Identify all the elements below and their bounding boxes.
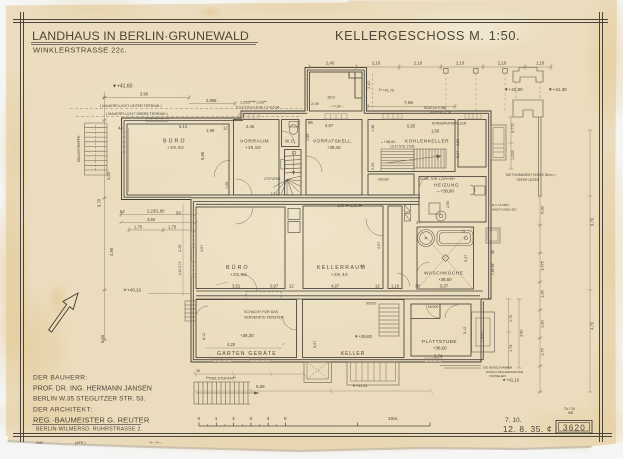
svg-text:KELLERTREPPE: KELLERTREPPE <box>77 135 81 162</box>
svg-text:1 9 13: 1 9 13 <box>271 192 280 196</box>
svg-text:2,10: 2,10 <box>456 61 465 66</box>
svg-text:▼+41,60: ▼+41,60 <box>504 87 523 92</box>
svg-text:⊢+41,70: ⊢+41,70 <box>379 89 394 93</box>
svg-text:+38,60: +38,60 <box>438 277 452 282</box>
svg-text:9,70: 9,70 <box>97 198 102 207</box>
svg-text:▼+41,44: ▼+41,44 <box>352 384 367 388</box>
svg-text:12: 12 <box>223 126 228 131</box>
svg-text:1,50: 1,50 <box>431 129 440 134</box>
svg-text:4,20: 4,20 <box>227 342 236 347</box>
svg-text:↔+38,60: ↔+38,60 <box>380 140 396 144</box>
svg-text:2,74: 2,74 <box>434 354 443 359</box>
svg-text:KOHL.TÜR 1,20/⊢00⊢: KOHL.TÜR 1,20/⊢00⊢ <box>420 177 455 181</box>
svg-text:KOHLENKELLER: KOHLENKELLER <box>405 139 449 145</box>
svg-text:VORRAUM: VORRAUM <box>240 139 269 145</box>
svg-text:2,87: 2,87 <box>325 123 334 128</box>
svg-text:3,50: 3,50 <box>147 217 156 222</box>
svg-text:90/200: 90/200 <box>366 302 376 306</box>
svg-text:5: 5 <box>284 416 287 422</box>
svg-text:2,10: 2,10 <box>372 61 381 66</box>
svg-text:▼+39,60: ▼+39,60 <box>354 334 372 339</box>
svg-text:6,58: 6,58 <box>256 384 265 389</box>
svg-text:▼+41,60: ▼+41,60 <box>112 84 133 90</box>
svg-text:8,12: 8,12 <box>202 333 206 340</box>
svg-text:2,09: 2,09 <box>311 101 320 106</box>
svg-text:13 27 STG 17/26: 13 27 STG 17/26 <box>390 145 415 149</box>
svg-text:4,95: 4,95 <box>109 247 114 256</box>
svg-text:W.C.: W.C. <box>285 139 296 144</box>
svg-text:0: 0 <box>198 416 201 422</box>
svg-text:4: 4 <box>267 416 270 422</box>
svg-text:+39,50: +39,50 <box>167 145 184 150</box>
svg-text:▼+41,10: ▼+41,10 <box>502 378 520 383</box>
svg-text:10m.: 10m. <box>388 416 399 422</box>
svg-text:5,37: 5,37 <box>464 255 468 262</box>
svg-text:WASCHKÜCHE: WASCHKÜCHE <box>424 270 463 277</box>
svg-text:+39,60: +39,60 <box>377 178 389 182</box>
svg-text:46: 46 <box>491 250 495 254</box>
svg-text:3,50: 3,50 <box>520 330 524 337</box>
svg-text:↔+38,90: ↔+38,90 <box>436 189 455 194</box>
svg-text:2: 2 <box>232 416 235 422</box>
svg-text:12: 12 <box>289 284 294 289</box>
svg-text:DER ARCHITEKT:: DER ARCHITEKT: <box>33 407 92 414</box>
svg-text:58: 58 <box>176 211 181 216</box>
svg-text:+39,50: +39,50 <box>230 272 247 277</box>
svg-text:2,40: 2,40 <box>326 61 335 66</box>
svg-text:96: 96 <box>308 120 313 125</box>
svg-text:1,75: 1,75 <box>134 225 143 230</box>
svg-text:+39,50: +39,50 <box>245 145 261 150</box>
svg-text:KELLER: KELLER <box>341 351 365 357</box>
svg-text:+39,40: +39,40 <box>327 145 341 150</box>
svg-text:9,70: 9,70 <box>590 217 595 226</box>
svg-text:PLÄTTSTUBE: PLÄTTSTUBE <box>422 338 457 345</box>
svg-text:5,14: 5,14 <box>179 124 188 129</box>
svg-text:38: 38 <box>415 284 420 289</box>
svg-text:BÜRO: BÜRO <box>163 138 187 145</box>
svg-text:0,775: 0,775 <box>511 123 515 133</box>
svg-text:4,97: 4,97 <box>331 284 340 289</box>
svg-text:1,75: 1,75 <box>540 347 545 356</box>
svg-text:1,75: 1,75 <box>509 345 513 352</box>
svg-text:4,57: 4,57 <box>377 242 381 249</box>
svg-text:3,51: 3,51 <box>232 284 241 289</box>
svg-text:5,86: 5,86 <box>200 151 205 160</box>
svg-text:44: 44 <box>118 126 123 131</box>
svg-text:2,10: 2,10 <box>414 61 423 66</box>
svg-text:1,99·⊢·1,00·⊢: 1,99·⊢·1,00·⊢ <box>337 204 363 208</box>
svg-text:REG.·BAUMEISTER G. REUTER: REG.·BAUMEISTER G. REUTER <box>33 416 150 425</box>
svg-text:5,55: 5,55 <box>407 124 416 129</box>
svg-text:0,97: 0,97 <box>270 284 279 289</box>
svg-text:1,75: 1,75 <box>509 315 513 322</box>
svg-text:←+7,60→: ←+7,60→ <box>328 105 344 109</box>
svg-text:BERLIN W.35 STEGLITZER STR. 5: BERLIN W.35 STEGLITZER STR. 53. <box>33 396 146 403</box>
svg-text:3: 3 <box>249 416 252 422</box>
svg-text:VERSENKTE FENSTER: VERSENKTE FENSTER <box>244 316 284 320</box>
svg-text:5,07: 5,07 <box>440 284 449 289</box>
svg-text:3620: 3620 <box>563 424 586 433</box>
svg-text:5,50: 5,50 <box>100 334 105 343</box>
svg-text:1,64·84: 1,64·84 <box>491 263 495 275</box>
svg-text:2,10: 2,10 <box>498 61 507 66</box>
svg-text:DIE FUNDAMENT SOHLE 30cm ▽: DIE FUNDAMENT SOHLE 30cm ▽ <box>506 173 556 177</box>
svg-text:1,80: 1,80 <box>540 319 545 328</box>
svg-text:LANDHAUS IN BERLIN·GRUNEWALD: LANDHAUS IN BERLIN·GRUNEWALD <box>32 29 249 43</box>
svg-text:( MAUERFLUCHT UNTER TERRAIN ): ( MAUERFLUCHT UNTER TERRAIN ) <box>100 104 162 108</box>
svg-text:1,475: 1,475 <box>540 260 545 271</box>
svg-text:2,23/1,90: 2,23/1,90 <box>147 209 165 214</box>
svg-text:5,12: 5,12 <box>463 327 467 334</box>
svg-text:KELLERRAUM: KELLERRAUM <box>317 265 366 271</box>
svg-text:1: 1 <box>215 416 218 422</box>
svg-text:KELLERGESCHOSS M. 1:50.: KELLERGESCHOSS M. 1:50. <box>335 28 520 43</box>
svg-text:PROF. DR. ING. HERMANN JANSEN: PROF. DR. ING. HERMANN JANSEN <box>33 386 152 393</box>
svg-text:1,99: 1,99 <box>206 128 215 133</box>
svg-text:1,65: 1,65 <box>306 134 310 141</box>
svg-text:1,75: 1,75 <box>168 225 177 230</box>
svg-text:1,10: 1,10 <box>536 61 545 66</box>
svg-text:2,45: 2,45 <box>246 124 255 129</box>
svg-text:✕+40,10: ✕+40,10 <box>123 288 141 293</box>
svg-text:2,955: 2,955 <box>206 98 217 103</box>
svg-text:BÜRO: BÜRO <box>226 264 250 271</box>
svg-text:1,36: 1,36 <box>540 289 545 298</box>
svg-text:WB: WB <box>568 411 573 415</box>
svg-text:2,26: 2,26 <box>178 245 182 252</box>
svg-text:DER BAUHERR:: DER BAUHERR: <box>33 375 88 382</box>
svg-text:VORRATSKELL.: VORRATSKELL. <box>313 139 353 144</box>
svg-text:7. 10.: 7. 10. <box>505 417 522 424</box>
svg-text:GARTEN GERÄTE: GARTEN GERÄTE <box>217 350 277 357</box>
svg-text:12. 8. 35. ¢: 12. 8. 35. ¢ <box>503 424 552 434</box>
svg-text:+39,30: +39,30 <box>240 333 254 338</box>
svg-text:2,10: 2,10 <box>366 80 371 89</box>
svg-text:2,50: 2,50 <box>456 139 460 146</box>
svg-text:50,90·41,77·M: 50,90·41,77·M <box>430 110 451 114</box>
svg-text:BERLIN·WILMERSD. RUHRSTRASSE: BERLIN·WILMERSD. RUHRSTRASSE 2. <box>36 427 142 433</box>
svg-text:4,57: 4,57 <box>200 245 204 252</box>
svg-text:3,90: 3,90 <box>140 92 149 97</box>
svg-text:64: 64 <box>120 209 125 214</box>
svg-text:9,0·2,0·51+0,5·64·2:1+0,5·64·: 9,0·2,0·51+0,5·64·2:1+0,5·64· <box>236 105 280 109</box>
svg-text:TIEFER LEGEN: TIEFER LEGEN <box>516 178 540 182</box>
svg-text:⊢→⊢←: ⊢→⊢← <box>150 441 163 445</box>
svg-text:17STUFEN: 17STUFEN <box>264 177 281 181</box>
svg-text:6000 FUSSB.HZG: 6000 FUSSB.HZG <box>492 208 517 212</box>
svg-text:2,49: 2,49 <box>371 163 375 170</box>
svg-text:97: 97 <box>416 221 420 225</box>
svg-text:4,70: 4,70 <box>590 321 595 330</box>
svg-text:1,08: 1,08 <box>225 182 229 189</box>
svg-text:1,38: 1,38 <box>371 125 375 132</box>
svg-text:B.V. Nr.5850: B.V. Nr.5850 <box>492 203 509 207</box>
svg-text:38: 38 <box>196 369 200 373</box>
svg-text:WINKLERSTRASSE 22c.: WINKLERSTRASSE 22c. <box>33 46 127 55</box>
svg-text:SCHACHT FÜR DAS: SCHACHT FÜR DAS <box>244 310 279 314</box>
svg-text:1,255⊢⊢1,06⊢: 1,255⊢⊢1,06⊢ <box>240 101 268 105</box>
svg-text:1,49·0,74: 1,49·0,74 <box>178 261 182 275</box>
svg-text:1,40/2,0: 1,40/2,0 <box>481 330 485 342</box>
svg-text:2,90: 2,90 <box>446 201 450 208</box>
svg-text:+38,60: +38,60 <box>433 346 447 351</box>
svg-text:90/200: 90/200 <box>428 305 438 309</box>
svg-text:▼+41,30: ▼+41,30 <box>548 87 567 92</box>
svg-text:7,68: 7,68 <box>404 100 413 105</box>
svg-text:(AFR.): (AFR.) <box>75 441 86 445</box>
svg-text:4,62: 4,62 <box>106 171 111 180</box>
svg-text:+39,40: +39,40 <box>331 272 348 277</box>
svg-text:⊢KEILSTUFEN⊢: ⊢KEILSTUFEN⊢ <box>206 377 237 381</box>
svg-text:1,10: 1,10 <box>391 284 400 289</box>
svg-text:12: 12 <box>375 284 380 289</box>
svg-text:72: 72 <box>461 230 465 234</box>
svg-text:5,07: 5,07 <box>456 151 460 158</box>
svg-text:( MAUERFLUCHT OBERE TERRAIN ): ( MAUERFLUCHT OBERE TERRAIN ) <box>106 112 168 116</box>
svg-text:5,07: 5,07 <box>313 341 317 348</box>
svg-text:GHZ: GHZ <box>36 441 43 445</box>
svg-text:1,225: 1,225 <box>511 150 515 160</box>
svg-text:KONSERVENKELLER: KONSERVENKELLER <box>432 122 467 126</box>
svg-text:5,08: 5,08 <box>540 205 545 214</box>
svg-text:15,0: 15,0 <box>327 95 336 100</box>
